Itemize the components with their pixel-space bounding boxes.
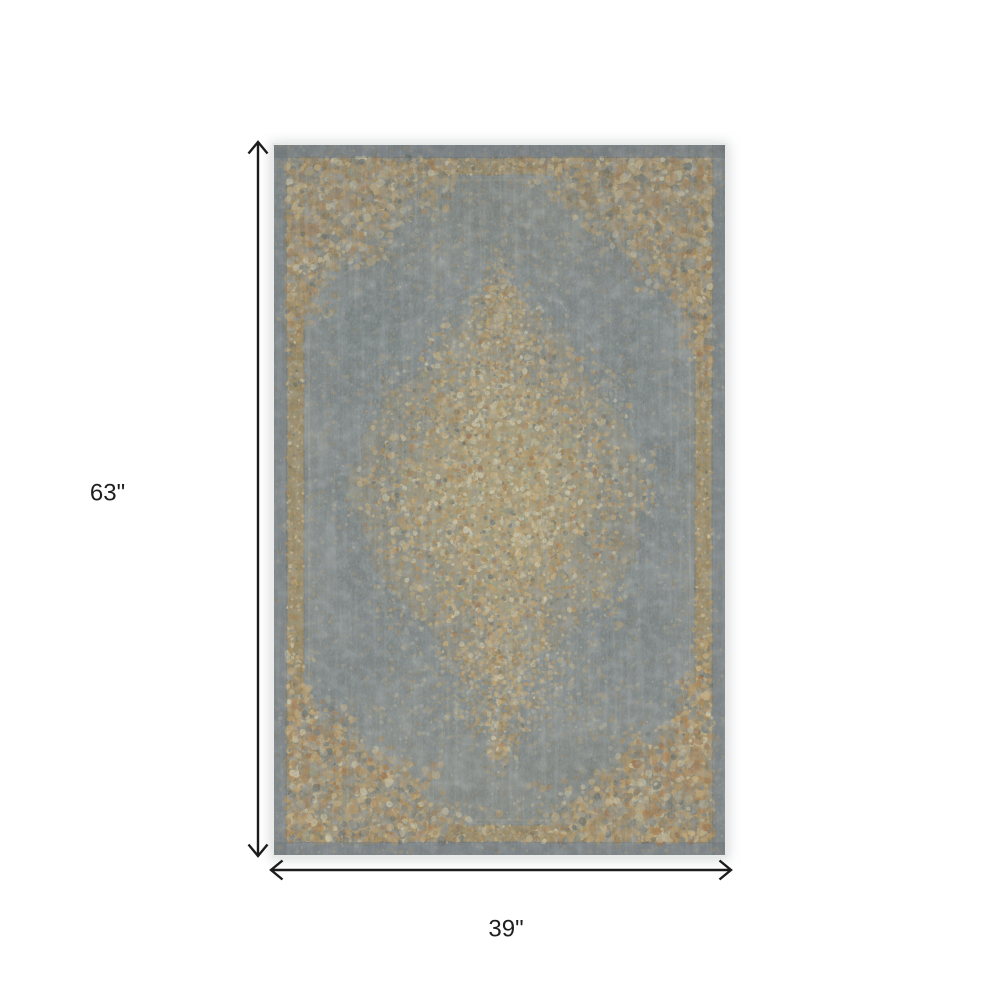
svg-text:63": 63"	[90, 480, 125, 507]
svg-text:39": 39"	[488, 916, 523, 943]
